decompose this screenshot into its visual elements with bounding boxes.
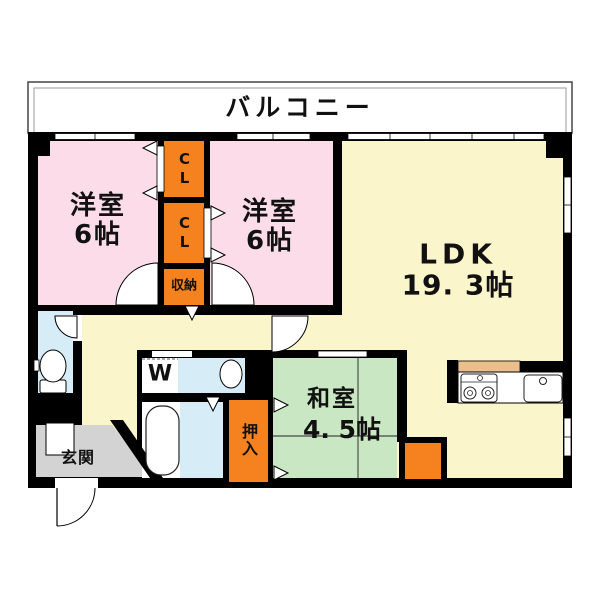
japanese-room-size: 4. 5帖 [303,416,381,444]
window-ldk-top [348,134,544,140]
sink-fixture [524,375,562,402]
toilet-fixture [40,350,66,382]
bedroom2-size: 6帖 [242,227,298,256]
entrance-label: 玄関 [61,449,95,467]
oshiire-label: 押入 [239,423,257,457]
closet2-door [204,208,211,258]
entry-door-opening [55,478,98,488]
corner-block-topleft [28,132,50,156]
ldk-label: LDK 19. 3帖 [402,239,515,302]
floorplan-page: バルコニー 洋室 6帖 洋室 6帖 LDK 19. 3帖 和室 4. 5帖 CL… [0,0,600,600]
closet2-label: CL [177,214,192,252]
bedroom1-size: 6帖 [70,221,126,250]
bedroom2-name: 洋室 [242,198,298,227]
bedroom2-label: 洋室 6帖 [242,198,298,256]
bathtub-fixture [146,406,179,475]
toilet-control-fixture [34,360,39,371]
ldk-column-box [405,443,441,479]
corner-block-topright [546,132,572,158]
entry-door-arc [57,488,95,526]
washbasin-fixture [220,360,242,388]
bedroom1-name: 洋室 [70,192,126,221]
kitchen-wall-top [520,361,563,372]
laundry-label: W [148,363,172,388]
ldk-size: 19. 3帖 [402,270,515,301]
kitchen-wall-stub [447,360,458,403]
washroom-opening [152,351,192,357]
bathroom-floor-right [180,402,223,478]
closet1-label: CL [177,150,192,188]
kitchen-counter-top [458,361,520,372]
balcony-label: バルコニー [225,94,375,122]
storage-label: 収納 [171,280,197,295]
bedroom1-label: 洋室 6帖 [70,192,126,250]
ldk-name: LDK [402,239,515,270]
window-japanese-room [318,351,367,357]
japanese-room-label: 和室 [307,387,357,413]
japanese-room-east-wall [397,350,407,442]
closet1-door [157,146,164,192]
window-bedroom2 [237,134,310,140]
